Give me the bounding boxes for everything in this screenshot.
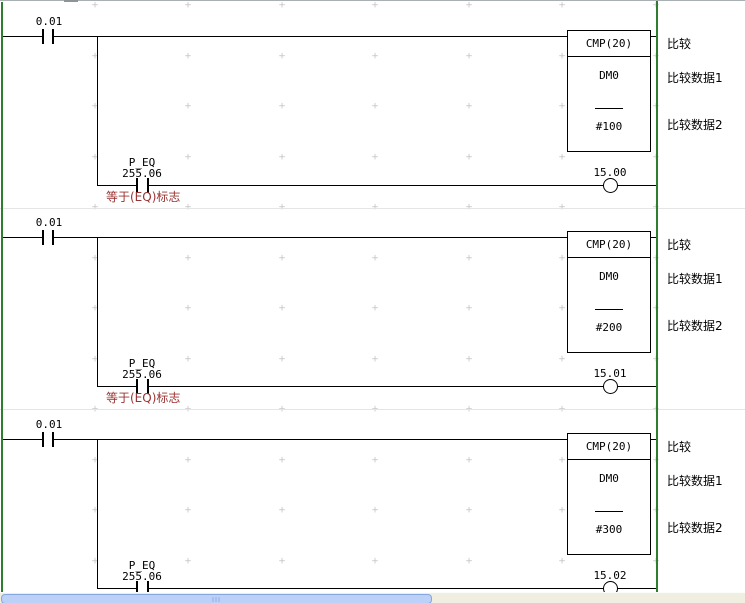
rung-wire (54, 439, 567, 440)
grid-cross-mark: + (278, 457, 286, 466)
scrollbar-thumb[interactable] (1, 594, 432, 603)
branch-wire (97, 36, 98, 186)
grid-cross-mark: + (465, 53, 473, 62)
block-comment-data1: 比较数据1 (667, 474, 723, 488)
grid-cross-mark: + (371, 53, 379, 62)
branch-rung-wire (149, 588, 604, 589)
block-operand-1: DM0 (568, 473, 650, 485)
block-mnemonic: CMP(20) (568, 31, 650, 57)
input-contact-label: 0.01 (33, 16, 65, 28)
block-comment-data1: 比较数据1 (667, 272, 723, 286)
grid-cross-mark: + (184, 154, 192, 163)
grid-cross-mark: + (278, 53, 286, 62)
pane-top-border (0, 0, 745, 1)
grid-cross-mark: + (184, 255, 192, 264)
grid-cross-mark: + (184, 103, 192, 112)
grid-cross-mark: + (558, 2, 566, 11)
output-coil[interactable] (603, 379, 618, 394)
grid-cross-mark: + (465, 457, 473, 466)
branch-wire (97, 439, 98, 589)
branch-rung-wire (97, 185, 137, 186)
grid-cross-mark: + (465, 507, 473, 516)
grid-cross-mark: + (184, 406, 192, 415)
grid-cross-mark: + (371, 305, 379, 314)
block-mnemonic: CMP(20) (568, 434, 650, 460)
grid-cross-mark: + (278, 2, 286, 11)
cmp-function-block[interactable]: CMP(20) DM0 #100 (567, 30, 651, 152)
eq-flag-comment: 等于(EQ)标志 (106, 392, 180, 405)
grid-cross-mark: + (558, 154, 566, 163)
grid-cross-mark: + (465, 406, 473, 415)
grid-cross-mark: + (558, 406, 566, 415)
grid-cross-mark: + (558, 305, 566, 314)
grid-cross-mark: + (278, 558, 286, 567)
grid-cross-mark: + (558, 103, 566, 112)
operand-divider (595, 511, 623, 512)
grid-cross-mark: + (465, 356, 473, 365)
eq-contact-address: 255.06 (112, 369, 172, 381)
grid-cross-mark: + (465, 103, 473, 112)
grid-cross-mark: + (184, 558, 192, 567)
block-operand-1: DM0 (568, 271, 650, 283)
eq-contact-address: 255.06 (112, 168, 172, 180)
grid-cross-mark: + (465, 154, 473, 163)
block-comment-title: 比较 (667, 440, 691, 454)
rung-wire (2, 36, 43, 37)
grid-cross-mark: + (278, 356, 286, 365)
grid-cross-mark: + (558, 53, 566, 62)
grid-cross-mark: + (465, 2, 473, 11)
rung-separator (0, 208, 745, 209)
grid-cross-mark: + (371, 103, 379, 112)
block-comment-title: 比较 (667, 37, 691, 51)
scrollbar-grip-icon (212, 597, 221, 602)
contact-symbol[interactable] (42, 230, 44, 245)
grid-cross-mark: + (558, 457, 566, 466)
grid-cross-mark: + (558, 255, 566, 264)
grid-cross-mark: + (371, 558, 379, 567)
grid-cross-mark: + (465, 305, 473, 314)
input-contact-label: 0.01 (33, 419, 65, 431)
grid-cross-mark: + (371, 154, 379, 163)
block-operand-2: #100 (568, 121, 650, 133)
horizontal-scrollbar[interactable] (0, 592, 745, 603)
grid-cross-mark: + (184, 356, 192, 365)
grid-cross-mark: + (371, 507, 379, 516)
grid-cross-mark: + (278, 507, 286, 516)
pane-top-artifact (64, 0, 78, 2)
rung-separator (0, 409, 745, 410)
grid-cross-mark: + (278, 103, 286, 112)
cmp-function-block[interactable]: CMP(20) DM0 #200 (567, 231, 651, 353)
contact-symbol[interactable] (42, 29, 44, 44)
block-operand-2: #200 (568, 322, 650, 334)
grid-cross-mark: + (558, 356, 566, 365)
output-coil[interactable] (603, 178, 618, 193)
operand-divider (595, 108, 623, 109)
grid-cross-mark: + (184, 2, 192, 11)
eq-contact-address: 255.06 (112, 571, 172, 583)
branch-wire (97, 237, 98, 387)
grid-cross-mark: + (184, 507, 192, 516)
branch-rung-wire (97, 588, 137, 589)
grid-cross-mark: + (91, 2, 99, 11)
rung-wire (54, 36, 567, 37)
grid-cross-mark: + (184, 305, 192, 314)
eq-flag-comment: 等于(EQ)标志 (106, 191, 180, 204)
grid-cross-mark: + (371, 2, 379, 11)
block-comment-title: 比较 (667, 238, 691, 252)
branch-rung-wire (97, 386, 137, 387)
grid-cross-mark: + (278, 255, 286, 264)
grid-cross-mark: + (184, 457, 192, 466)
block-comment-data1: 比较数据1 (667, 71, 723, 85)
rung-wire (54, 237, 567, 238)
grid-cross-mark: + (278, 305, 286, 314)
coil-wire (618, 185, 656, 186)
block-comment-data2: 比较数据2 (667, 319, 723, 333)
grid-cross-mark: + (558, 558, 566, 567)
grid-cross-mark: + (465, 558, 473, 567)
block-mnemonic: CMP(20) (568, 232, 650, 258)
grid-cross-mark: + (465, 255, 473, 264)
grid-cross-mark: + (184, 53, 192, 62)
block-operand-1: DM0 (568, 70, 650, 82)
grid-cross-mark: + (278, 406, 286, 415)
grid-cross-mark: + (278, 154, 286, 163)
coil-wire (618, 386, 656, 387)
branch-rung-wire (149, 386, 604, 387)
grid-cross-mark: + (371, 406, 379, 415)
ladder-canvas: ++++++++++++++++++++++++++++++++++++++++… (0, 0, 745, 603)
grid-cross-mark: + (91, 406, 99, 415)
operand-divider (595, 309, 623, 310)
block-operand-2: #300 (568, 524, 650, 536)
left-bus-rail (1, 2, 3, 592)
block-comment-data2: 比较数据2 (667, 118, 723, 132)
branch-rung-wire (149, 185, 604, 186)
rung-wire (2, 237, 43, 238)
right-bus-rail (656, 0, 658, 592)
coil-wire (618, 588, 656, 589)
grid-cross-mark: + (371, 457, 379, 466)
input-contact-label: 0.01 (33, 217, 65, 229)
rung-wire (2, 439, 43, 440)
grid-cross-mark: + (371, 356, 379, 365)
grid-cross-mark: + (558, 507, 566, 516)
cmp-function-block[interactable]: CMP(20) DM0 #300 (567, 433, 651, 555)
contact-symbol[interactable] (42, 432, 44, 447)
block-comment-data2: 比较数据2 (667, 521, 723, 535)
grid-cross-mark: + (371, 255, 379, 264)
